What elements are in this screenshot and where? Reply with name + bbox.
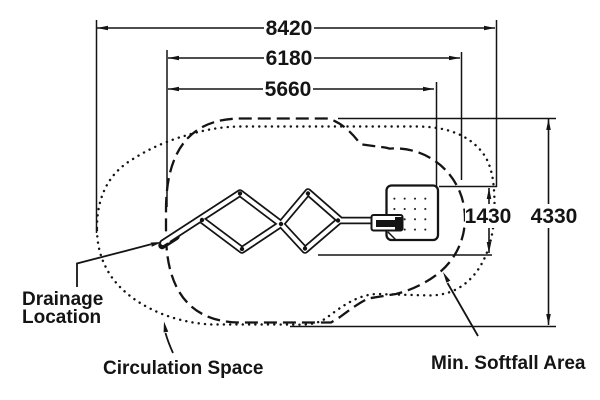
drainage-location-label-line2: Location [22,307,101,328]
drawing-canvas: 8420 6180 5660 1430 4330 Drainage Locati… [0,0,600,400]
dimension-equipment-width: 5660 [265,78,312,101]
softfall-leader [448,283,479,336]
platform-clevis [372,215,403,231]
zigzag-structure [162,191,403,251]
extension-lines [97,20,557,327]
dimension-overall-width: 8420 [266,17,313,40]
dimension-softfall-width: 6180 [266,47,313,70]
circulation-space-label: Circulation Space [103,358,264,379]
connector-highlight [166,239,170,243]
drainage-leader [77,244,151,287]
circulation-arrow [164,322,169,333]
dimension-drawing: 8420 6180 5660 1430 4330 Drainage Locati… [0,0,600,400]
dimension-equipment-depth: 1430 [465,205,512,228]
softfall-arrow [443,272,450,283]
dimension-lines [97,26,551,325]
circulation-leader [166,333,174,353]
min-softfall-area-label: Min. Softfall Area [431,353,586,374]
dimension-softfall-depth: 4330 [531,205,578,228]
platform [387,186,439,241]
leader-lines [77,242,478,353]
